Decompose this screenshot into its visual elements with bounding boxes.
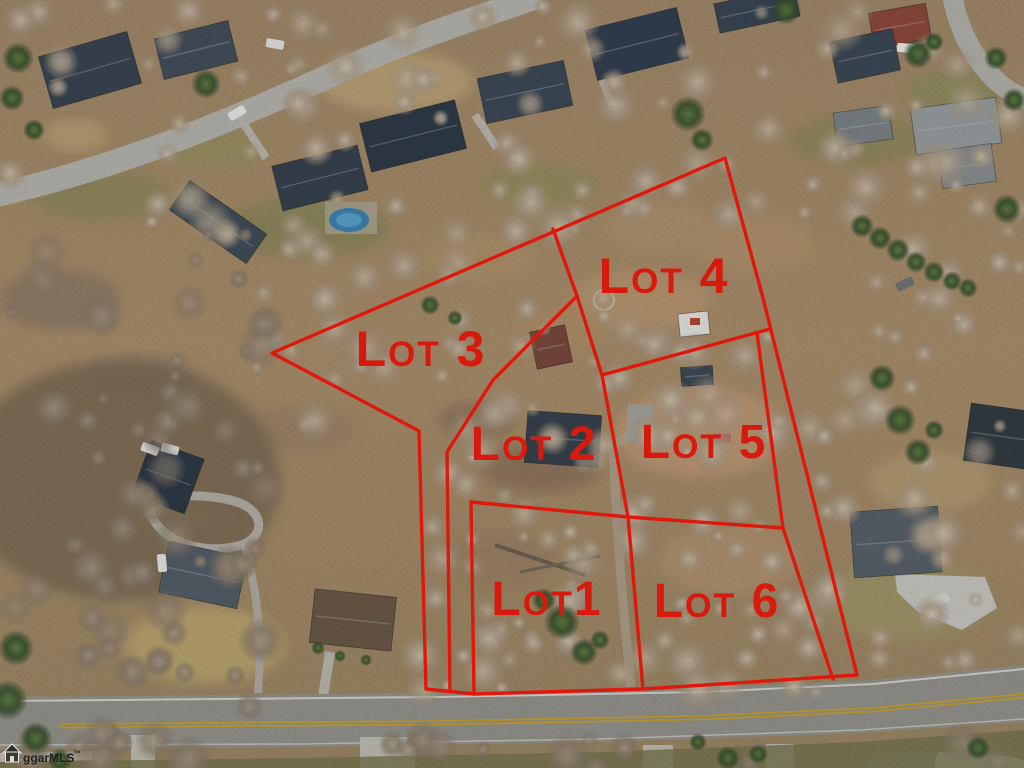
aerial-photo: Lot 3 Lot 4 Lot 2 Lot 5 Lot1 Lot 6 ggarM… [0, 0, 1024, 768]
lot-label-2: Lot 2 [471, 418, 598, 471]
lot-label-1: Lot1 [491, 573, 602, 626]
watermark-text: ggarMLS [23, 751, 74, 765]
watermark-trademark: ™ [73, 749, 81, 758]
photo-grain-texture [0, 0, 1024, 768]
lot-label-4: Lot 4 [599, 248, 730, 304]
aerial-lot-map: Lot 3 Lot 4 Lot 2 Lot 5 Lot1 Lot 6 ggarM… [0, 0, 1024, 768]
lot-label-3: Lot 3 [356, 321, 487, 377]
lot-label-5: Lot 5 [641, 416, 768, 469]
lot-label-6: Lot 6 [654, 575, 781, 628]
